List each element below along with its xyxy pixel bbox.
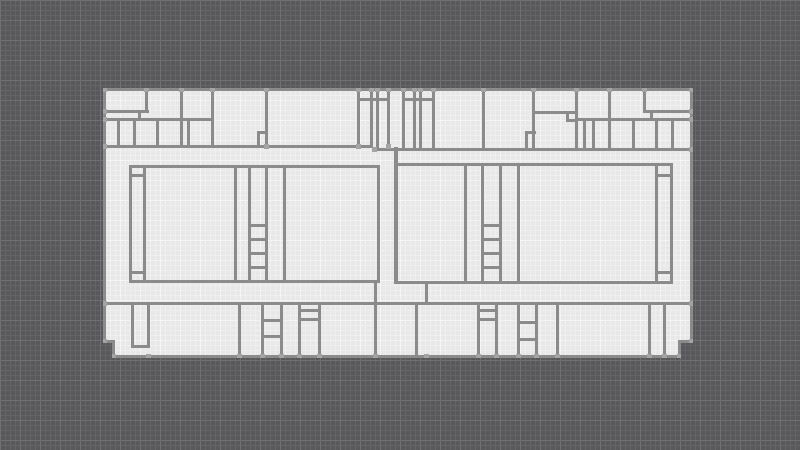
wall-segment[interactable] [525,131,528,148]
wall-segment[interactable] [103,302,693,305]
wall-segment[interactable] [103,145,373,148]
wall-segment[interactable] [477,318,498,321]
wall-vertex[interactable] [401,87,406,92]
wall-segment[interactable] [374,302,377,355]
wall-vertex[interactable] [689,109,694,114]
wall-segment[interactable] [248,266,268,269]
wall-segment[interactable] [377,165,380,283]
wall-segment[interactable] [464,163,467,284]
wall-segment[interactable] [147,302,150,348]
wall-segment[interactable] [112,355,681,358]
wall-segment[interactable] [482,88,485,151]
wall-segment[interactable] [156,118,159,148]
wall-segment[interactable] [374,283,377,302]
wall-vertex[interactable] [102,339,107,344]
wall-vertex[interactable] [102,144,107,149]
wall-segment[interactable] [248,224,268,227]
wall-vertex[interactable] [369,87,374,92]
wall-vertex[interactable] [260,354,265,359]
wall-vertex[interactable] [662,354,667,359]
design-canvas[interactable] [0,0,800,450]
wall-segment[interactable] [394,163,673,166]
wall-vertex[interactable] [516,354,521,359]
wall-segment[interactable] [248,238,268,241]
wall-segment[interactable] [129,165,380,168]
wall-vertex[interactable] [264,87,269,92]
wall-vertex[interactable] [647,354,652,359]
wall-segment[interactable] [481,224,502,227]
wall-segment[interactable] [592,118,595,151]
wall-segment[interactable] [394,147,398,284]
wall-segment[interactable] [671,118,674,151]
wall-segment[interactable] [402,98,435,101]
wall-vertex[interactable] [531,87,536,92]
wall-vertex[interactable] [642,87,647,92]
wall-segment[interactable] [129,280,380,283]
wall-segment[interactable] [265,88,268,148]
wall-vertex[interactable] [264,144,269,149]
wall-segment[interactable] [280,302,283,355]
wall-vertex[interactable] [386,144,391,149]
wall-vertex[interactable] [481,87,486,92]
wall-segment[interactable] [415,302,418,355]
wall-vertex[interactable] [356,87,361,92]
wall-segment[interactable] [187,118,190,148]
wall-segment[interactable] [655,118,658,151]
wall-segment[interactable] [481,266,502,269]
wall-vertex[interactable] [210,87,215,92]
wall-vertex[interactable] [102,87,107,92]
wall-segment[interactable] [248,252,268,255]
wall-segment[interactable] [117,118,120,148]
wall-segment[interactable] [517,302,520,355]
wall-vertex[interactable] [375,87,380,92]
wall-segment[interactable] [648,302,651,355]
wall-segment[interactable] [373,148,690,151]
wall-vertex[interactable] [476,354,481,359]
wall-segment[interactable] [234,165,237,283]
wall-vertex[interactable] [412,87,417,92]
wall-segment[interactable] [481,238,502,241]
wall-segment[interactable] [298,309,321,312]
wall-segment[interactable] [283,165,286,283]
wall-vertex[interactable] [237,354,242,359]
wall-vertex[interactable] [279,354,284,359]
wall-segment[interactable] [532,111,578,114]
wall-segment[interactable] [261,319,283,322]
wall-vertex[interactable] [317,354,322,359]
wall-segment[interactable] [129,165,132,283]
wall-vertex[interactable] [102,117,107,122]
wall-segment[interactable] [532,88,535,151]
wall-segment[interactable] [655,163,658,284]
wall-segment[interactable] [131,302,134,348]
wall-segment[interactable] [394,281,673,284]
wall-segment[interactable] [517,163,520,284]
wall-vertex[interactable] [386,87,391,92]
wall-segment[interactable] [655,174,673,177]
wall-segment[interactable] [517,338,538,341]
wall-vertex[interactable] [689,117,694,122]
wall-segment[interactable] [261,302,264,355]
wall-segment[interactable] [632,118,635,151]
wall-segment[interactable] [655,271,673,274]
wall-segment[interactable] [376,88,379,148]
wall-segment[interactable] [670,163,673,284]
wall-segment[interactable] [131,345,150,348]
wall-segment[interactable] [143,165,146,283]
wall-segment[interactable] [298,318,321,321]
wall-segment[interactable] [583,118,586,151]
wall-vertex[interactable] [144,87,149,92]
wall-segment[interactable] [103,88,693,91]
wall-segment[interactable] [129,174,146,177]
wall-segment[interactable] [517,321,538,324]
wall-vertex[interactable] [689,87,694,92]
wall-vertex[interactable] [689,147,694,152]
wall-segment[interactable] [357,88,360,148]
wall-vertex[interactable] [179,87,184,92]
wall-segment[interactable] [387,88,390,148]
wall-segment[interactable] [357,98,390,101]
wall-segment[interactable] [370,88,373,148]
wall-segment[interactable] [103,110,149,113]
wall-vertex[interactable] [424,354,429,359]
wall-segment[interactable] [477,309,498,312]
wall-vertex[interactable] [111,354,116,359]
wall-vertex[interactable] [356,144,361,149]
wall-vertex[interactable] [689,339,694,344]
wall-vertex[interactable] [102,301,107,306]
wall-vertex[interactable] [689,301,694,306]
wall-segment[interactable] [663,302,666,355]
wall-vertex[interactable] [102,109,107,114]
wall-segment[interactable] [556,302,559,355]
wall-segment[interactable] [425,284,428,302]
wall-segment[interactable] [535,302,538,355]
wall-segment[interactable] [133,118,136,148]
wall-segment[interactable] [261,335,283,338]
wall-vertex[interactable] [494,354,499,359]
wall-vertex[interactable] [418,87,423,92]
wall-segment[interactable] [238,302,241,355]
wall-segment[interactable] [481,252,502,255]
wall-vertex[interactable] [555,354,560,359]
wall-vertex[interactable] [373,354,378,359]
wall-vertex[interactable] [534,354,539,359]
wall-vertex[interactable] [431,87,436,92]
wall-vertex[interactable] [146,354,151,359]
wall-vertex[interactable] [574,87,579,92]
floor-plan[interactable] [103,88,693,358]
wall-vertex[interactable] [297,354,302,359]
wall-vertex[interactable] [607,87,612,92]
wall-segment[interactable] [129,271,146,274]
wall-vertex[interactable] [677,354,682,359]
wall-vertex[interactable] [372,147,377,152]
